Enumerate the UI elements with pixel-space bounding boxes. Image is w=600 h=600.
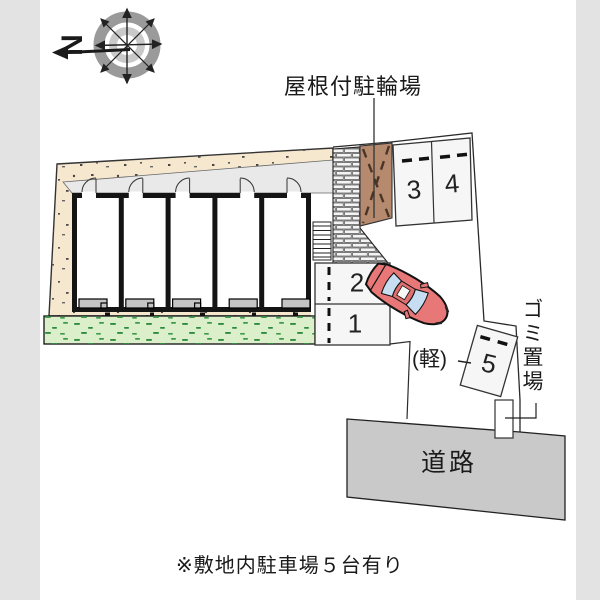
unit-room-1 [77, 198, 119, 307]
road-label: 道路 [421, 451, 477, 476]
left-page-margin [0, 0, 40, 600]
garbage-area-label: ゴミ置場 [521, 298, 542, 394]
unit-room-5 [264, 198, 306, 307]
compass-north-label: N [58, 34, 88, 56]
parking-stalls-3-4 [393, 138, 472, 226]
stall-number-3: 3 [405, 174, 422, 206]
apartment-building [72, 178, 311, 316]
garbage-box [495, 400, 513, 438]
site-boundary-lower-left [390, 342, 410, 420]
right-page-margin [576, 0, 600, 600]
caption-note: ※敷地内駐車場５台有り [176, 556, 404, 576]
kei-car-label: (軽) [412, 349, 447, 370]
grass-strip [44, 316, 315, 344]
stairs-icon [313, 222, 331, 260]
bike-parking-label: 屋根付駐輪場 [284, 76, 422, 98]
unit-room-3 [171, 198, 213, 307]
site-plan-page: N 屋根付駐輪場 ゴミ置場 (軽) 道路 ※敷地内駐車場５台有り 1 2 3 4… [0, 0, 600, 600]
stall-number-4: 4 [443, 168, 460, 200]
bicycle-parking-area [360, 143, 392, 226]
unit-room-2 [124, 198, 166, 307]
unit-room-4 [217, 198, 259, 307]
stall-number-2: 2 [350, 268, 364, 299]
stall-number-1: 1 [348, 309, 362, 340]
